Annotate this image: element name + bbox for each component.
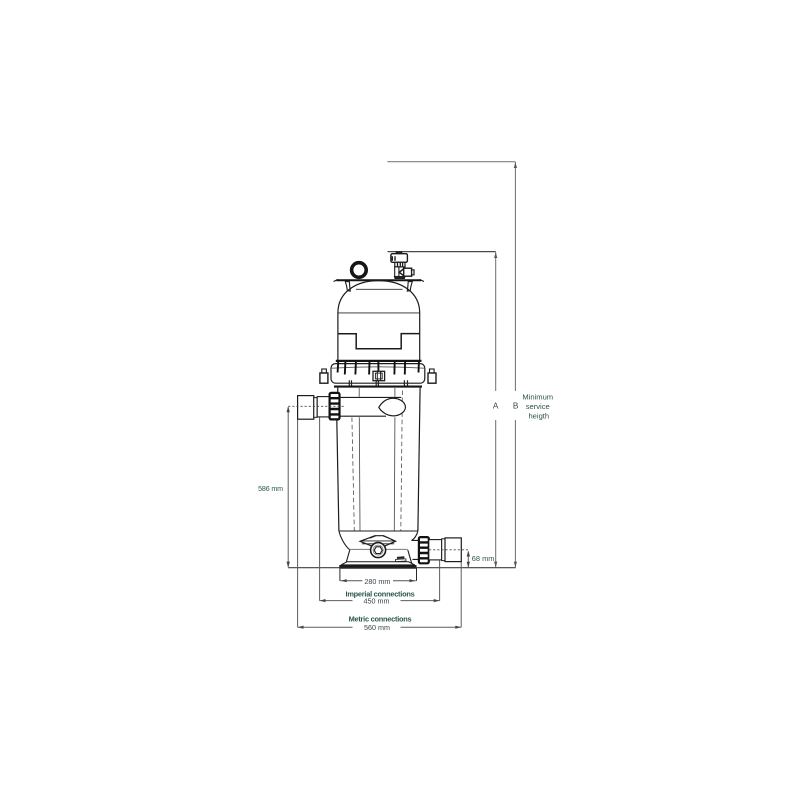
svg-text:A: A <box>493 402 499 411</box>
svg-text:280 mm: 280 mm <box>364 577 390 586</box>
svg-text:B: B <box>513 402 519 411</box>
svg-text:68 mm: 68 mm <box>472 554 495 563</box>
svg-text:586 mm: 586 mm <box>258 485 283 493</box>
svg-text:560 mm: 560 mm <box>364 623 390 632</box>
svg-text:450 mm: 450 mm <box>364 596 390 605</box>
